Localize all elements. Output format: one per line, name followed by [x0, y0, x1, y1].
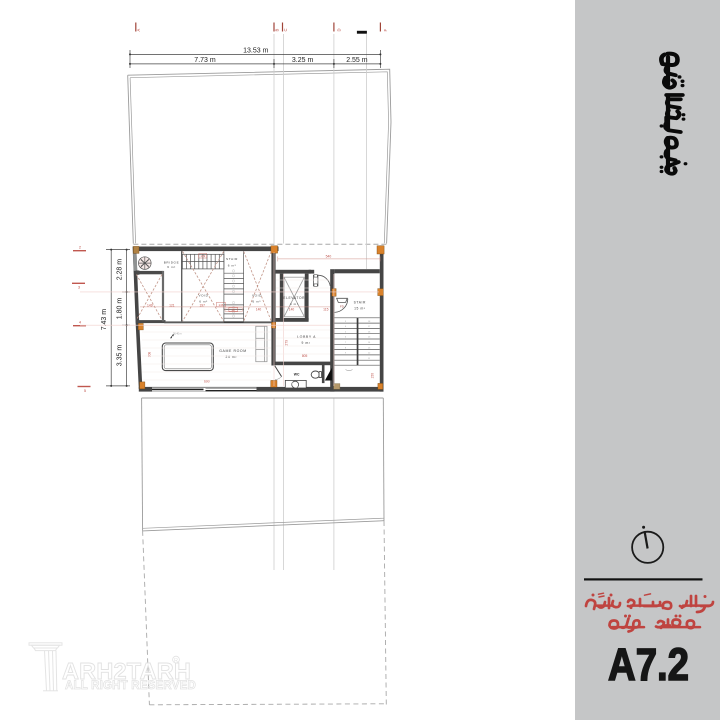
- svg-text:2.28 m: 2.28 m: [117, 259, 124, 281]
- svg-text:15 m²: 15 m²: [354, 307, 366, 311]
- svg-text:WC: WC: [294, 372, 300, 376]
- svg-text:7.43 m: 7.43 m: [101, 309, 108, 331]
- svg-text:6 m²: 6 m²: [228, 263, 237, 267]
- svg-text:F: F: [383, 29, 388, 32]
- svg-text:150: 150: [370, 373, 374, 379]
- svg-text:A: A: [136, 29, 141, 32]
- svg-text:121: 121: [169, 303, 175, 307]
- svg-text:R: R: [174, 658, 178, 664]
- svg-text:24 m²: 24 m²: [225, 355, 237, 359]
- svg-text:149: 149: [147, 303, 153, 307]
- svg-text:B: B: [274, 29, 279, 32]
- svg-text:FD: FD: [340, 304, 344, 308]
- svg-text:36.40 m: 36.40 m: [173, 333, 182, 336]
- svg-text:140: 140: [256, 308, 262, 312]
- svg-text:146: 146: [218, 303, 223, 307]
- svg-text:ELEVATOR: ELEVATOR: [283, 296, 305, 300]
- svg-text:STAIR: STAIR: [226, 257, 238, 261]
- svg-text:1.80 m: 1.80 m: [117, 298, 124, 320]
- svg-text:4 m²: 4 m²: [290, 302, 299, 306]
- svg-text:VOID: VOID: [252, 294, 262, 298]
- svg-text:2.55 m: 2.55 m: [346, 57, 368, 64]
- svg-text:9 m²: 9 m²: [302, 341, 311, 345]
- svg-text:6 m²: 6 m²: [252, 300, 261, 304]
- svg-text:BRIDGE: BRIDGE: [164, 260, 179, 264]
- svg-text:540: 540: [326, 255, 332, 259]
- svg-text:197: 197: [199, 303, 205, 307]
- svg-text:7.73 m: 7.73 m: [194, 57, 216, 64]
- svg-text:GAME ROOM: GAME ROOM: [219, 349, 247, 353]
- svg-text:A7.2: A7.2: [608, 639, 689, 690]
- svg-text:308: 308: [147, 352, 151, 358]
- svg-text:D: D: [336, 28, 341, 31]
- svg-text:13.53 m: 13.53 m: [243, 47, 268, 54]
- svg-text:ALL RIGHT RESERVED: ALL RIGHT RESERVED: [65, 680, 196, 692]
- svg-text:40: 40: [232, 308, 236, 312]
- svg-text:3.25 m: 3.25 m: [292, 57, 314, 64]
- svg-text:805: 805: [302, 354, 308, 358]
- svg-text:139: 139: [200, 254, 205, 258]
- svg-text:VOID: VOID: [199, 294, 209, 298]
- svg-text:C: C: [283, 28, 288, 31]
- svg-text:3.35 m: 3.35 m: [117, 345, 124, 367]
- svg-text:140: 140: [289, 308, 295, 312]
- svg-text:6 m²: 6 m²: [167, 265, 176, 269]
- svg-text:115: 115: [323, 308, 328, 312]
- svg-text:STAIR: STAIR: [354, 301, 366, 305]
- svg-text:279: 279: [285, 340, 289, 346]
